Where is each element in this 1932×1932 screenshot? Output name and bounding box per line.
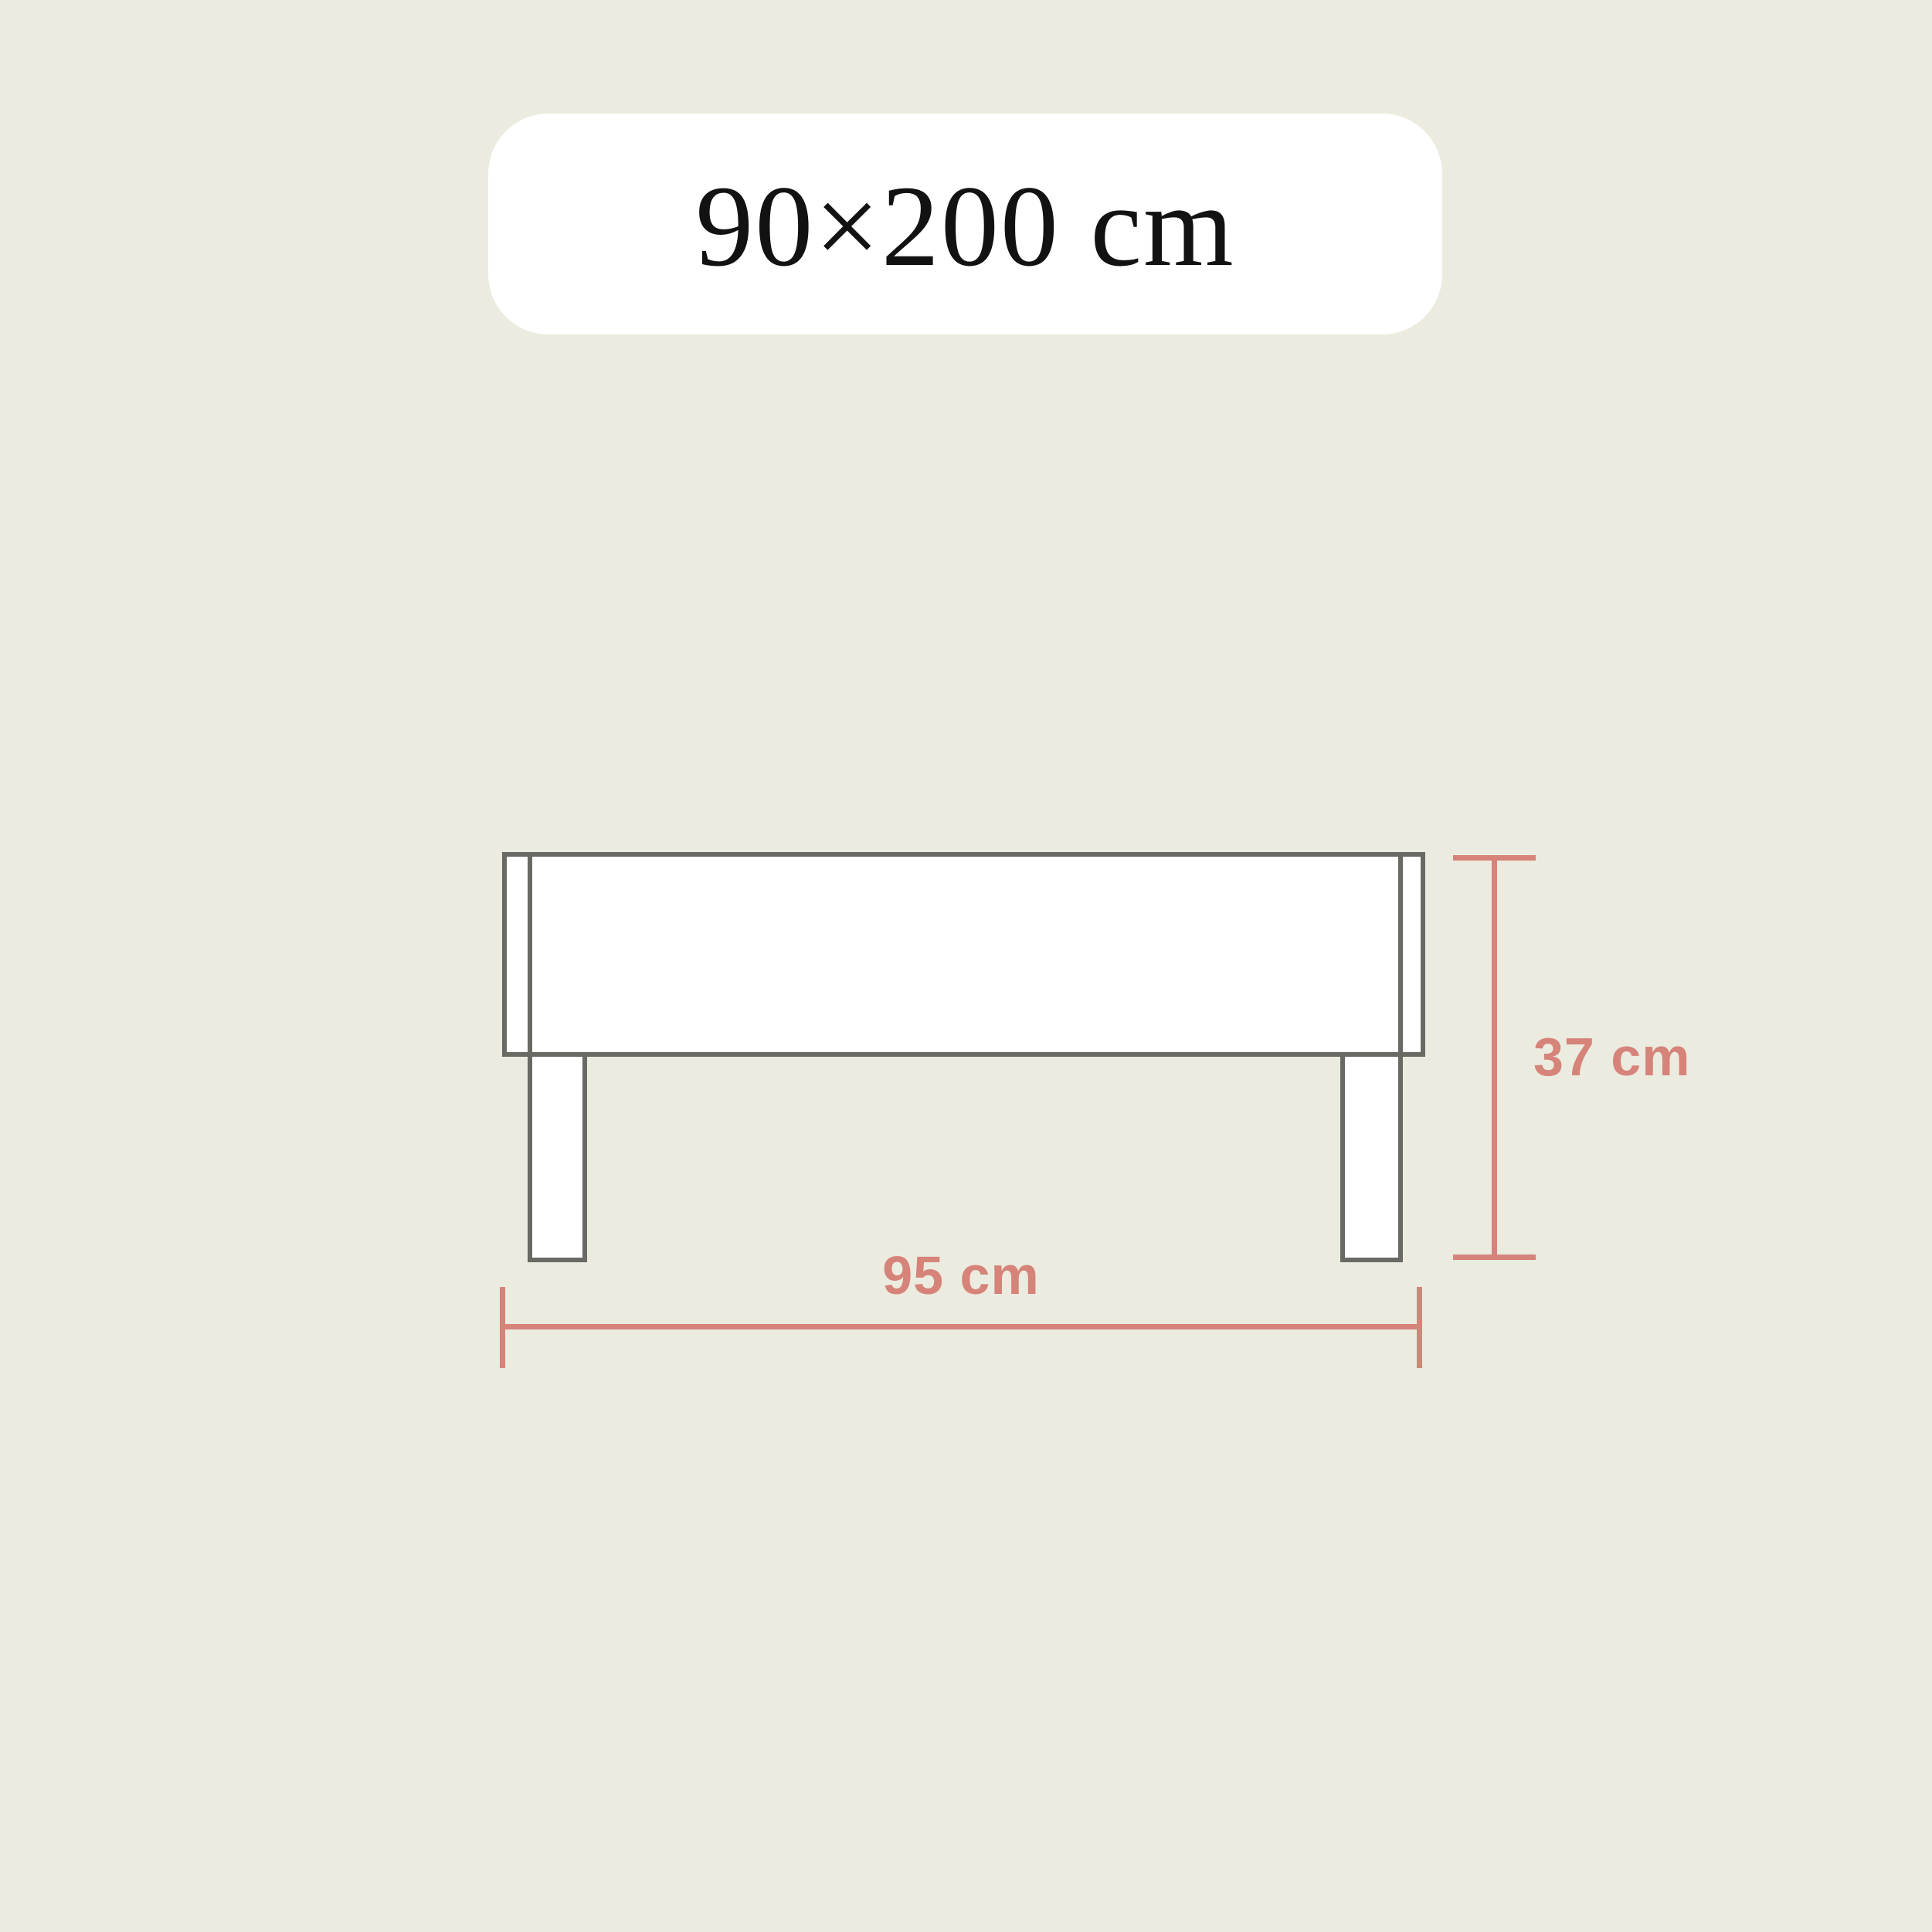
size-title-card: 90×200 cm bbox=[488, 114, 1442, 334]
size-title: 90×200 cm bbox=[695, 164, 1234, 284]
height-dimension-cap-bottom bbox=[1453, 1255, 1536, 1260]
height-dimension-line bbox=[1492, 855, 1497, 1260]
width-dimension-tick-right bbox=[1417, 1287, 1422, 1368]
height-dimension-cap-top bbox=[1453, 855, 1536, 861]
width-dimension-tick-left bbox=[500, 1287, 505, 1368]
bed-frame-rail bbox=[502, 852, 1425, 1057]
bed-post-line-left bbox=[528, 852, 532, 1057]
bed-leg-right bbox=[1340, 1057, 1403, 1262]
height-dimension-label: 37 cm bbox=[1533, 1030, 1690, 1084]
width-dimension-line bbox=[502, 1324, 1422, 1329]
bed-leg-left bbox=[528, 1057, 587, 1262]
page-background: 90×200 cm 37 cm 95 cm bbox=[0, 0, 1932, 1932]
bed-post-line-right bbox=[1398, 852, 1403, 1057]
width-dimension-label: 95 cm bbox=[806, 1248, 1115, 1302]
